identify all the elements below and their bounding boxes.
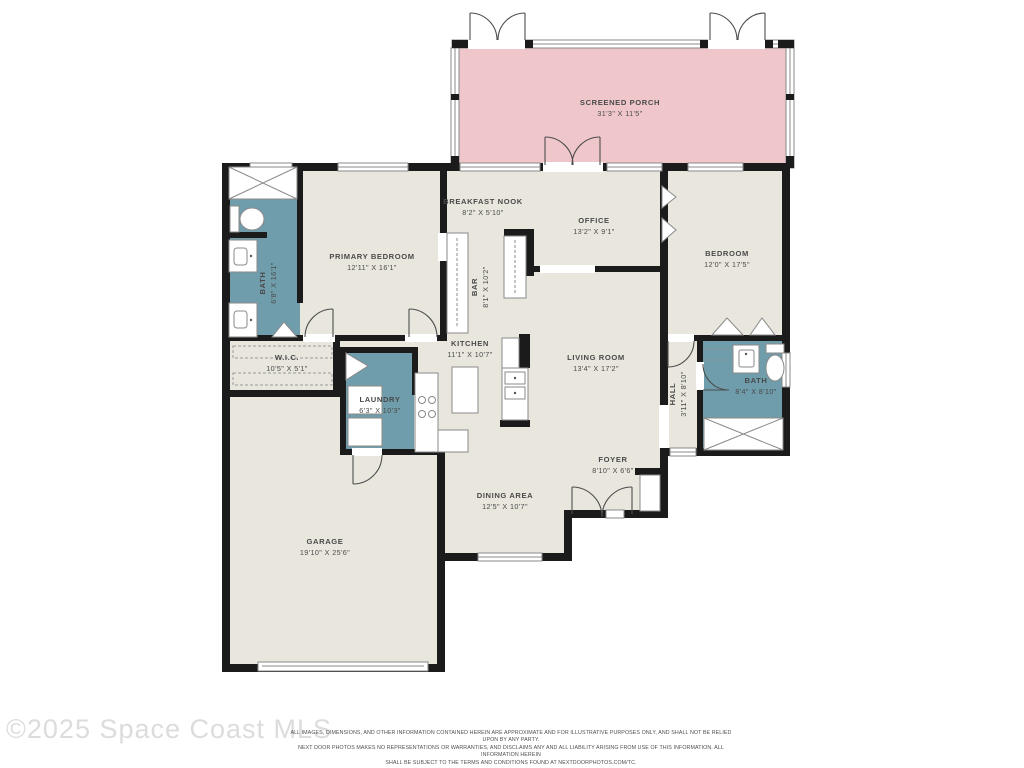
tub-icon [704,418,783,450]
garage-door-icon [258,662,428,671]
disclaimer-text: ALL IMAGES, DIMENSIONS, AND OTHER INFORM… [283,730,739,767]
screened-porch-floor [455,44,791,168]
disclaimer-line-1: ALL IMAGES, DIMENSIONS, AND OTHER INFORM… [283,730,739,745]
floor-plan-drawing [0,0,1024,768]
shower-icon [229,167,297,199]
floor-plan-page: SCREENED PORCH 31'3" X 11'5" BREAKFAST N… [0,0,1024,768]
disclaimer-line-3: SHALL BE SUBJECT TO THE TERMS AND CONDIT… [283,760,739,767]
foyer-closet-icon [640,475,660,511]
toilet-icon [230,206,264,232]
bath2-toilet-icon [766,344,784,381]
disclaimer-line-2: NEXT DOOR PHOTOS MAKES NO REPRESENTATION… [283,745,739,760]
